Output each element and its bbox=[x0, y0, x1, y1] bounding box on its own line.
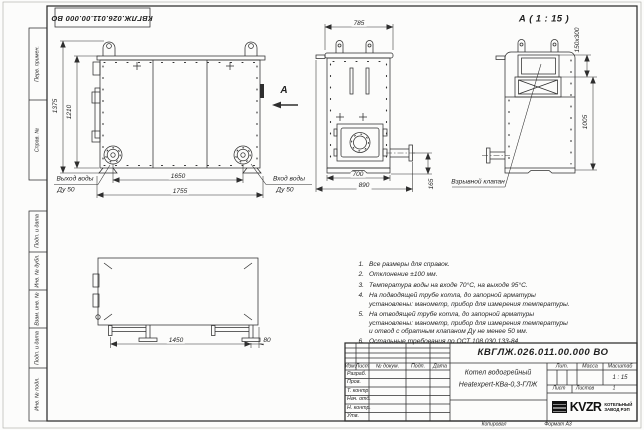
side-top-width-dim: 785 bbox=[352, 20, 367, 27]
technical-notes: 1.Все размеры для справок. 2.Отклонение … bbox=[352, 261, 640, 349]
plan-length-dim: 1450 bbox=[167, 337, 185, 344]
col-izm-header: Изм. bbox=[345, 364, 356, 369]
frame-column-sprav-no: Справ. № bbox=[35, 128, 40, 153]
sheet-frame bbox=[3, 2, 641, 428]
staff-row-tkontr: Т. контр. bbox=[347, 389, 370, 394]
side-bottom-outer-dim: 890 bbox=[357, 183, 372, 190]
side-view bbox=[316, 41, 416, 174]
company-logo: KVZR КОТЕЛЬНЫЙ ЗАВОД РЭП bbox=[548, 394, 636, 420]
front-height-body-dim: 1210 bbox=[67, 103, 74, 121]
staff-row-prov: Пров. bbox=[347, 380, 361, 385]
plan-view-dimensions bbox=[111, 327, 265, 348]
kvzr-logo-text: KVZR bbox=[570, 401, 602, 414]
note-item: 3.Температура воды на входе 70°С, на вых… bbox=[352, 282, 640, 290]
product-name-line1: Котел водогрейный bbox=[465, 370, 532, 377]
side-view-dimensions bbox=[316, 24, 432, 192]
lit-header: Лит. bbox=[556, 364, 568, 369]
note-number: 5. bbox=[352, 311, 364, 336]
note-text: Остальные требования по ОСТ 108.030.133-… bbox=[369, 338, 520, 346]
front-view bbox=[92, 42, 265, 173]
note-item: 4.На подводящей трубе котла, до запорной… bbox=[352, 292, 640, 309]
front-width-total-dim: 1755 bbox=[171, 188, 189, 195]
detail-height-dim: 1005 bbox=[583, 113, 590, 131]
frame-column-podp-data-1: Подп. и дата bbox=[35, 214, 40, 248]
note-number: 6. bbox=[352, 338, 364, 346]
drawing-sheet: КВГЛЖ.026.011.00.000 ВО Перв. примен. Сп… bbox=[0, 0, 644, 430]
detail-hatch-dim: 150х300 bbox=[575, 26, 582, 55]
side-bottom-inner-dim: 700 bbox=[351, 171, 366, 178]
note-number: 2. bbox=[352, 271, 364, 279]
note-text: Отклонение ±100 мм. bbox=[369, 271, 438, 279]
note-item: 5.На отводящей трубе котла, до запорной … bbox=[352, 311, 640, 336]
staff-row-nkontr: Н. контр. bbox=[347, 406, 371, 411]
company-name: КОТЕЛЬНЫЙ ЗАВОД РЭП bbox=[604, 402, 632, 413]
staff-row-utv: Утв. bbox=[347, 414, 359, 419]
sheets-value: 1 bbox=[613, 387, 616, 392]
water-inlet-label: Вход воды bbox=[273, 177, 305, 184]
water-inlet-dn-label: Ду 50 bbox=[276, 187, 293, 194]
frame-column-inv-podl: Инв. № подл. bbox=[35, 377, 40, 410]
front-width-flanges-dim: 1650 bbox=[169, 173, 187, 180]
staff-row-nachotd: Нач. отд. bbox=[347, 397, 371, 402]
col-doc-header: № докум. bbox=[376, 364, 399, 369]
col-podp-header: Подп. bbox=[411, 364, 425, 369]
scale-header: Масштаб bbox=[608, 364, 633, 369]
col-data-header: Дата bbox=[433, 364, 447, 369]
company-name-line2: ЗАВОД РЭП bbox=[604, 407, 632, 412]
sheets-label: Листов bbox=[576, 387, 594, 392]
copied-by-label: Копировал bbox=[482, 423, 507, 428]
product-name-line2: Heatexpert-КВа-0,3-ГЛЖ bbox=[459, 382, 537, 389]
mass-header: Масса bbox=[582, 364, 598, 369]
note-item: 1.Все размеры для справок. bbox=[352, 261, 640, 269]
frame-column-vzam-inv: Взам. инв. № bbox=[35, 292, 40, 325]
frame-column-inv-dubl: Инв. № дубл. bbox=[35, 254, 40, 287]
frame-column-podp-data-2: Подп. и дата bbox=[35, 331, 40, 365]
drawing-linework bbox=[0, 0, 644, 430]
water-outlet-label: Выход воды bbox=[56, 177, 93, 184]
note-item: 6.Остальные требования по ОСТ 108.030.13… bbox=[352, 338, 640, 346]
staff-row-razrab: Разраб. bbox=[347, 372, 366, 377]
front-height-total-dim: 1375 bbox=[53, 97, 60, 115]
format-label: Формат А3 bbox=[544, 423, 571, 428]
plan-view bbox=[93, 258, 260, 342]
title-block-doc-number: КВГЛЖ.026.011.00.000 ВО bbox=[477, 348, 608, 358]
note-text: Все размеры для справок. bbox=[369, 261, 450, 269]
section-arrow-letter: А bbox=[280, 86, 287, 96]
col-list-header: Лист bbox=[356, 364, 370, 369]
note-text: На подводящей трубе котла, до запорной а… bbox=[369, 292, 571, 309]
kvzr-logo-icon bbox=[552, 401, 567, 413]
top-stamp-doc-number: КВГЛЖ.026.011.00.000 ВО bbox=[51, 14, 153, 22]
note-text: На отводящей трубе котла, до запорной ар… bbox=[369, 311, 571, 336]
plan-offset-dim: 80 bbox=[261, 337, 272, 344]
side-pipe-offset-dim: 165 bbox=[429, 177, 436, 192]
note-number: 1. bbox=[352, 261, 364, 269]
water-outlet-dn-label: Ду 50 bbox=[57, 187, 74, 194]
note-text: Температура воды на входе 70°С, на выход… bbox=[369, 282, 528, 290]
sheet-label: Лист bbox=[553, 387, 566, 392]
note-item: 2.Отклонение ±100 мм. bbox=[352, 271, 640, 279]
note-number: 4. bbox=[352, 292, 364, 309]
scale-value: 1 : 15 bbox=[612, 375, 627, 381]
explosion-valve-callout: Взрывной клапан bbox=[451, 180, 505, 187]
detail-view-title: А ( 1 : 15 ) bbox=[519, 14, 569, 24]
frame-column-perv-primen: Перв. примен. bbox=[35, 46, 40, 82]
note-number: 3. bbox=[352, 282, 364, 290]
